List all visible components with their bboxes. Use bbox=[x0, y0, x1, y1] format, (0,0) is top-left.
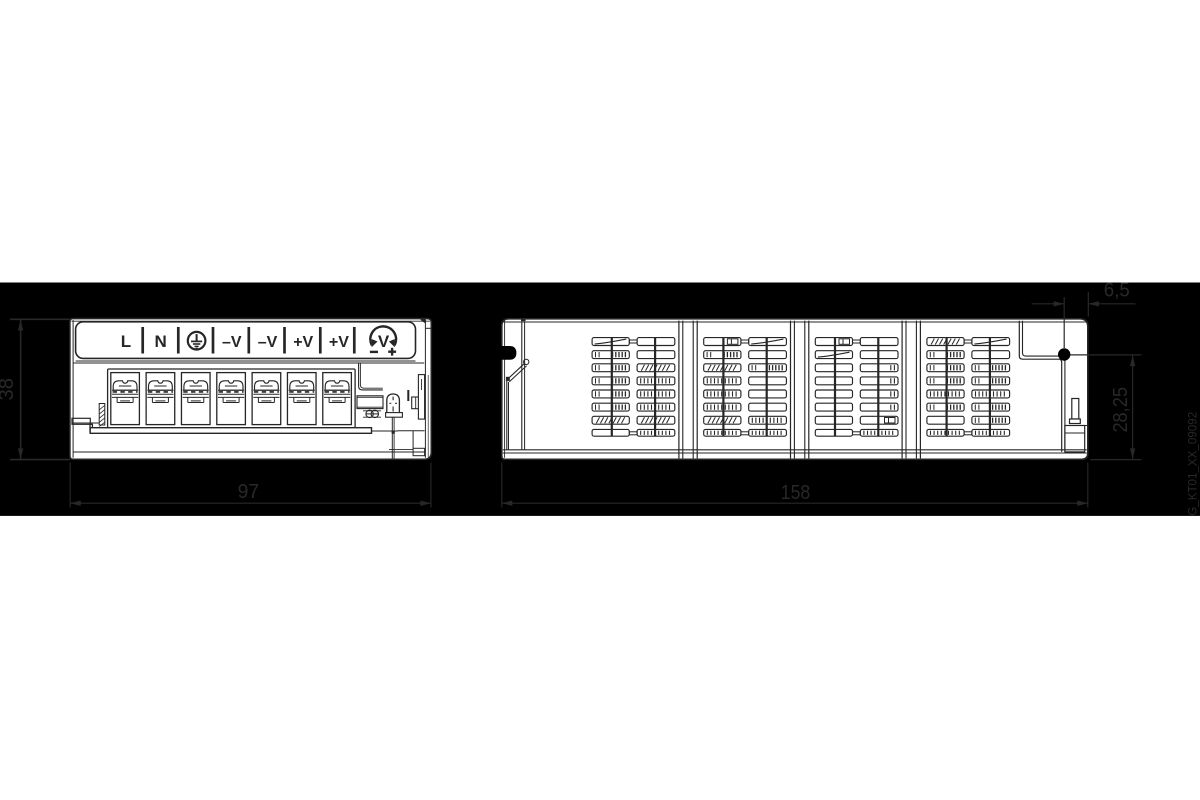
svg-text:38: 38 bbox=[0, 378, 18, 401]
svg-text:+V: +V bbox=[293, 334, 313, 351]
svg-text:28,25: 28,25 bbox=[1110, 387, 1132, 433]
svg-text:L: L bbox=[121, 332, 131, 351]
svg-text:–V: –V bbox=[258, 334, 278, 351]
svg-text:158: 158 bbox=[781, 482, 811, 504]
svg-text:6,5: 6,5 bbox=[1104, 279, 1130, 301]
svg-text:–V: –V bbox=[222, 334, 242, 351]
svg-text:97: 97 bbox=[238, 481, 260, 503]
svg-text:G_KT01_XX_09092: G_KT01_XX_09092 bbox=[1188, 412, 1200, 516]
svg-text:N: N bbox=[155, 332, 167, 351]
svg-text:V: V bbox=[378, 332, 390, 351]
svg-text:+V: +V bbox=[329, 334, 349, 351]
